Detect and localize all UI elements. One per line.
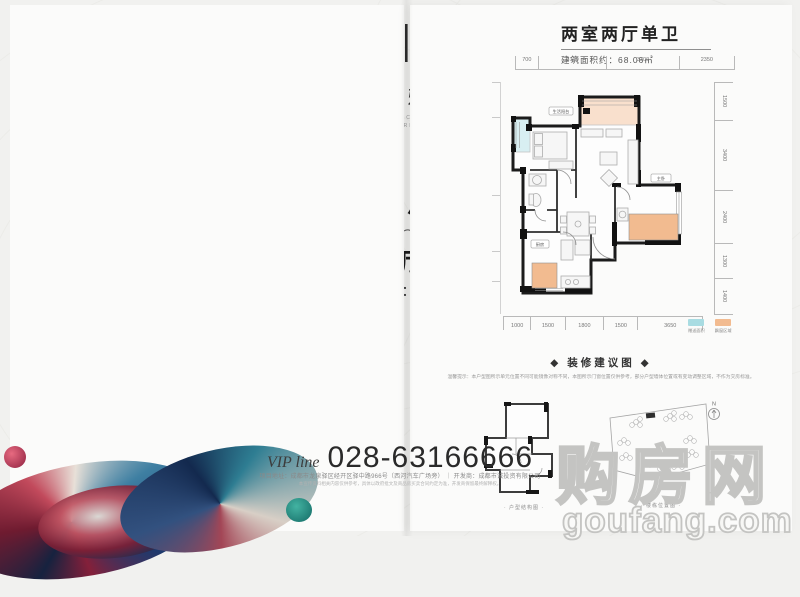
tick	[492, 281, 500, 314]
tick	[492, 117, 500, 195]
tick	[492, 251, 500, 282]
dim-label: 2350	[701, 57, 713, 63]
legend-swatch-cyan	[688, 319, 704, 326]
compass-label: N	[712, 402, 716, 408]
dim-label: 1300	[721, 255, 727, 267]
watermark-en: goufang.com	[562, 503, 793, 538]
room-tag-master-bedroom: 主卧	[657, 175, 665, 182]
dim-segment: 3100	[539, 56, 608, 69]
plan-legend: 赠送面积 飘窗区域	[688, 319, 732, 334]
dim-label: 3400	[721, 149, 727, 161]
legend-item: 飘窗区域	[715, 319, 732, 334]
room-tag-balcony: 生活阳台	[553, 108, 570, 115]
dim-segment: 1800	[566, 317, 605, 330]
dim-segment: 1500	[604, 317, 638, 330]
watermark-cn: 购房网	[556, 444, 793, 508]
paint-dot-teal	[286, 498, 312, 522]
legend-swatch-orange	[715, 319, 731, 326]
plan-header-rule	[561, 49, 711, 50]
dim-label: 1500	[721, 95, 727, 107]
dim-label: 2400	[721, 211, 727, 223]
dim-label: 3100	[566, 57, 578, 63]
plan-header-title: 两室两厅单卫	[561, 20, 711, 45]
room-tag-kitchen: 厨房	[536, 241, 544, 248]
legend-label: 赠送面积	[688, 328, 705, 334]
tick	[492, 82, 500, 117]
dim-label: 1500	[542, 323, 554, 329]
site-highlighted-building	[646, 412, 655, 418]
watermark: 购房网 goufang.com	[556, 444, 793, 538]
dimension-ticks-left	[492, 82, 501, 314]
vip-line-label: VIP line	[267, 454, 320, 472]
dim-label: 3300	[637, 57, 649, 63]
floorplan-svg: 生活阳台 主卧 厨房	[505, 82, 720, 314]
phone-number: 028-63166666	[328, 441, 534, 475]
legend-label: 飘窗区域	[715, 328, 732, 334]
dim-label: 1000	[511, 323, 523, 329]
legend-item: 赠送面积	[688, 319, 705, 334]
dim-label: 1800	[578, 323, 590, 329]
dim-label: 1500	[615, 323, 627, 329]
suggestion-title: ◆ 装修建议图 ◆	[410, 355, 792, 370]
bedroom-bed-area	[629, 214, 678, 240]
dimensions-top: 700 3100 3300 2350	[515, 56, 735, 70]
dim-segment: 700	[516, 56, 539, 69]
compass-icon: N	[709, 402, 720, 420]
dim-label: 3650	[664, 323, 676, 329]
dimensions-bottom: 1000 1500 1800 1500 3650	[503, 316, 703, 330]
dim-segment: 1500	[531, 317, 565, 330]
dim-segment: 1000	[504, 317, 531, 330]
dim-label: 700	[522, 57, 531, 63]
tick	[492, 195, 500, 250]
kitchen-bonus-area	[532, 263, 557, 288]
dim-label: 1400	[721, 290, 727, 302]
dim-segment: 3300	[607, 56, 679, 69]
dim-segment: 2350	[680, 56, 735, 69]
suggestion-note: 温馨提示：本户型图所示单元位置不同可能镜像对称不同，本图所示门窗位置仅供参考，部…	[430, 373, 772, 380]
